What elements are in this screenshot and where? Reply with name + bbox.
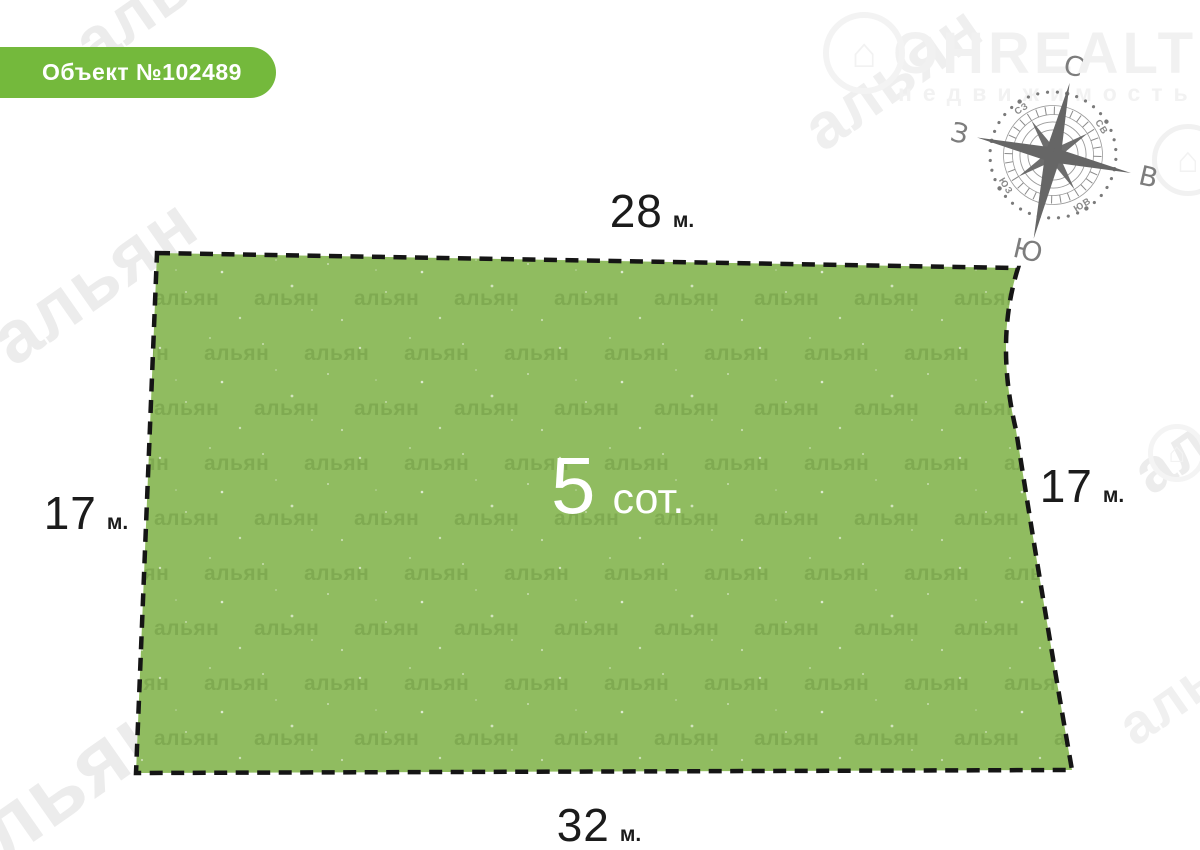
area-value: 5 <box>551 446 596 526</box>
compass-label-east: В <box>1136 160 1161 194</box>
compass-label-west: З <box>947 117 971 151</box>
plot-area-label: 5 сот. <box>551 446 684 526</box>
compass-label-south: Ю <box>1010 233 1045 270</box>
dimension-unit: м. <box>107 511 128 535</box>
dimension-unit: м. <box>1103 484 1124 508</box>
dimension-value: 17 <box>44 486 97 540</box>
dimension-value: 28 <box>610 184 663 238</box>
dimension-unit: м. <box>620 823 641 847</box>
object-number-label: Объект №102489 <box>42 59 242 86</box>
dimension-label-left: 17 м. <box>44 486 129 540</box>
dimension-label-top: 28 м. <box>610 184 695 238</box>
dimension-value: 32 <box>557 798 610 850</box>
area-unit: сот. <box>613 475 685 524</box>
dimension-unit: м. <box>673 209 694 233</box>
object-number-badge: Объект №102489 <box>0 47 276 98</box>
dimension-label-bottom: 32 м. <box>557 798 642 850</box>
compass-label-se: ЮВ <box>1072 196 1094 215</box>
dimension-value: 17 <box>1040 459 1093 513</box>
compass-rose-icon: СЗ СВ ЮЗ ЮВ С Ю З В <box>938 35 1168 275</box>
plot-scheme-canvas: альян альян альян альян альян альян ОНRE… <box>0 0 1200 850</box>
compass-needles <box>958 65 1148 256</box>
compass-label-north: С <box>1061 50 1086 84</box>
dimension-label-right: 17 м. <box>1040 459 1125 513</box>
